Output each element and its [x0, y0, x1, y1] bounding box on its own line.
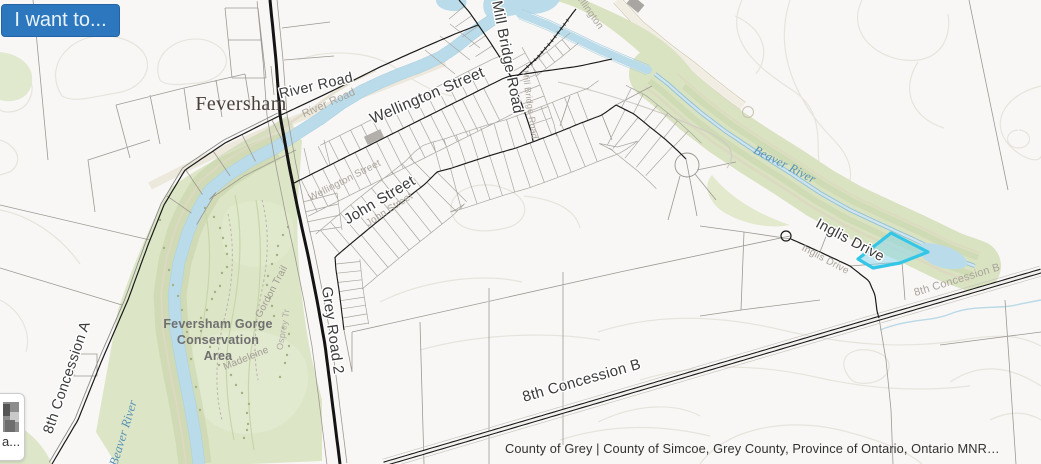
- svg-text:Feversham: Feversham: [195, 93, 286, 115]
- svg-text:Area: Area: [204, 349, 233, 363]
- svg-text:Feversham Gorge: Feversham Gorge: [163, 317, 272, 331]
- svg-text:Conservation: Conservation: [177, 333, 259, 347]
